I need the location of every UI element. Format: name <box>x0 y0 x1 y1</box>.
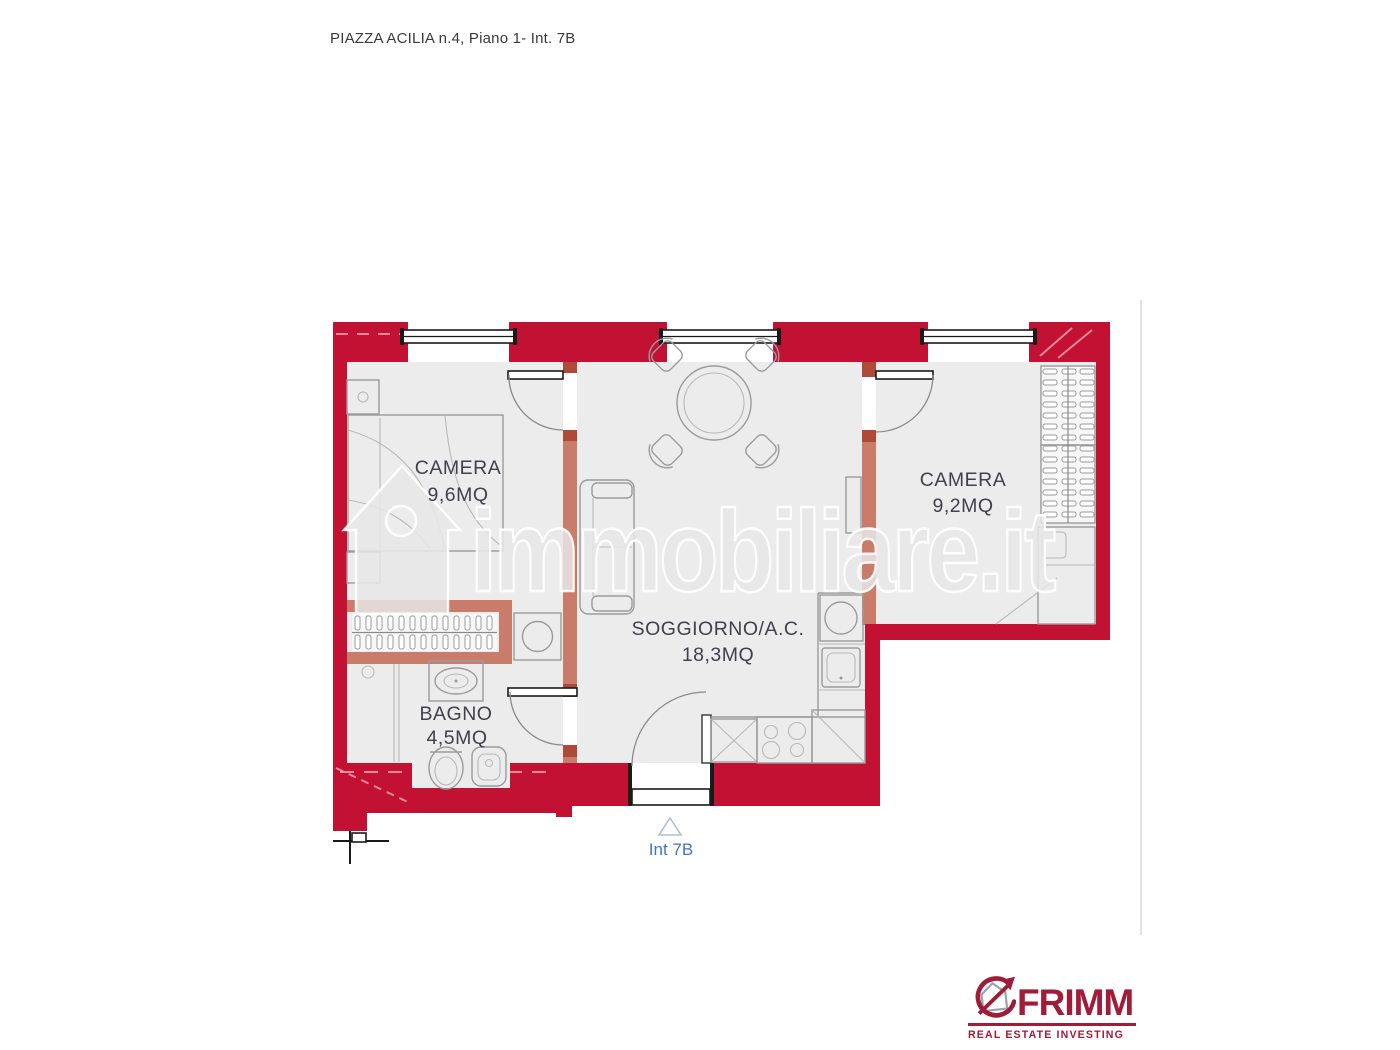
floor-plan-page: PIAZZA ACILIA n.4, Piano 1- Int. 7B <box>0 0 1400 1050</box>
room-label-soggiorno-name: SOGGIORNO/A.C. <box>632 618 805 640</box>
room-label-camera-2-name: CAMERA <box>920 469 1006 491</box>
window-icons <box>400 322 1037 362</box>
room-label-camera-1-name: CAMERA <box>415 457 501 479</box>
adjacent-structure-lines <box>333 831 389 864</box>
entrance-label: Int 7B <box>649 840 693 859</box>
room-label-camera-1-area: 9,6MQ <box>427 484 488 506</box>
room-label-camera-2-area: 9,2MQ <box>932 495 993 517</box>
window-icon <box>920 322 1037 362</box>
window-icon <box>400 322 517 362</box>
closet-icon <box>352 614 497 651</box>
brand-rule <box>968 1023 1136 1026</box>
bathroom-recess <box>412 763 510 788</box>
room-label-bagno-area: 4,5MQ <box>426 727 487 749</box>
floor-plan-drawing: immobiliare.it CAMERA 9,6MQ CAMERA 9,2MQ… <box>0 0 1400 1050</box>
room-label-soggiorno-area: 18,3MQ <box>682 644 754 666</box>
entrance-marker: Int 7B <box>649 818 693 859</box>
brand-name: FRIMM <box>1017 985 1133 1020</box>
room-label-bagno-name: BAGNO <box>420 703 493 725</box>
house-arrow-icon <box>968 974 1016 1020</box>
brand-tagline: REAL ESTATE INVESTING <box>968 1029 1136 1041</box>
brand-logo: FRIMM REAL ESTATE INVESTING <box>968 974 1136 1041</box>
triangle-up-icon <box>659 818 681 835</box>
